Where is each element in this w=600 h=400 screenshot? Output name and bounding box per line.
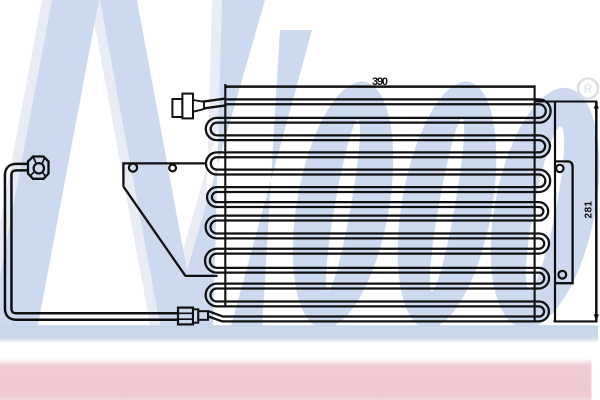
svg-text:R: R [584, 82, 593, 96]
svg-text:390: 390 [372, 76, 388, 88]
